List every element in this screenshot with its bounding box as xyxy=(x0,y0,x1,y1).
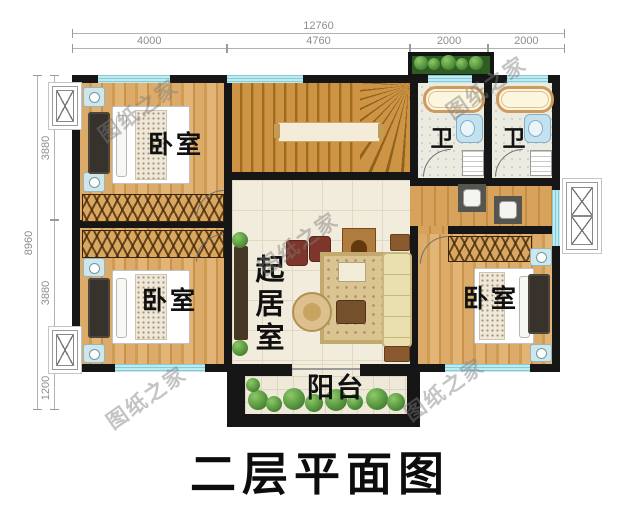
bedroom-top-left-label: 卧室 xyxy=(138,132,214,158)
ac-box xyxy=(52,86,78,126)
side-table xyxy=(390,234,410,251)
bathroom-right-label: 卫 xyxy=(500,126,528,150)
bathroom-left-label: 卫 xyxy=(428,126,456,150)
stair-landing xyxy=(278,122,380,142)
headboard xyxy=(528,274,550,334)
plant xyxy=(456,58,468,70)
balcony-wall-bottom xyxy=(227,414,420,427)
window xyxy=(552,190,560,246)
balcony-label: 阳台 xyxy=(298,374,374,402)
toilet xyxy=(524,114,551,143)
dimension-total-cell: 8960 xyxy=(22,75,38,410)
pillow xyxy=(116,278,127,338)
bathroom-vanity xyxy=(530,150,552,176)
plant xyxy=(414,56,428,70)
dimension-label: 4760 xyxy=(227,35,411,47)
ac-box xyxy=(566,182,598,250)
x-glyph xyxy=(571,216,593,245)
x-glyph xyxy=(571,187,593,216)
dimension-label: 3880 xyxy=(40,135,52,159)
ac-box xyxy=(52,330,78,370)
nightstand xyxy=(83,87,105,107)
dimension-segment: 1200 xyxy=(39,365,55,410)
dimension-segment: 4000 xyxy=(72,33,227,49)
plant xyxy=(469,56,483,70)
dimension-label: 4000 xyxy=(72,35,227,47)
plant xyxy=(246,378,260,392)
round-table xyxy=(292,292,332,332)
plant xyxy=(248,390,268,410)
bedroom-right-door-floor xyxy=(418,226,448,234)
rug-ornament xyxy=(336,300,366,324)
nightstand xyxy=(83,172,105,192)
tv-stand xyxy=(234,246,248,340)
living-balcony-wall-left xyxy=(245,364,292,376)
plant xyxy=(266,396,282,412)
window xyxy=(227,75,303,83)
balcony-sliding-door xyxy=(292,368,360,370)
stair-post xyxy=(274,124,280,138)
plant xyxy=(428,58,440,70)
balcony-wall-left xyxy=(227,368,245,416)
plant xyxy=(441,55,456,70)
dimension-left-total-label: 8960 xyxy=(23,230,35,254)
nightstand xyxy=(83,344,105,363)
washbasin xyxy=(494,196,522,224)
nightstand xyxy=(530,248,552,266)
wardrobe xyxy=(448,236,532,262)
plant xyxy=(232,340,248,356)
bedroom-right-label: 卧室 xyxy=(452,286,530,312)
nightstand xyxy=(530,344,552,362)
dimension-label: 2000 xyxy=(488,35,565,47)
x-glyph xyxy=(56,334,74,366)
washbasin xyxy=(458,184,486,212)
plant xyxy=(232,232,248,248)
sofa xyxy=(382,252,412,348)
dimension-segment: 4760 xyxy=(227,33,411,49)
coffee-table xyxy=(338,262,366,282)
bathroom-vanity xyxy=(462,150,484,176)
page-title: 二层平面图 xyxy=(0,438,640,504)
dimension-total-cell: 12760 xyxy=(72,18,565,34)
dimension-label: 2000 xyxy=(410,35,487,47)
dimension-segment: 2000 xyxy=(410,33,487,49)
dimension-label: 3880 xyxy=(40,280,52,304)
side-table xyxy=(384,346,410,362)
dimension-left-total: 8960 xyxy=(22,75,37,410)
x-glyph xyxy=(56,90,74,122)
floor-plan-canvas: 12760 4000 4760 2000 2000 8960 3880 3880… xyxy=(0,0,640,514)
stair-post xyxy=(378,124,384,138)
nightstand xyxy=(83,258,105,277)
bedroom-bottom-left-label: 卧室 xyxy=(132,288,208,314)
dimension-top-total-label: 12760 xyxy=(72,20,565,32)
dimension-label: 1200 xyxy=(40,375,52,399)
dimension-top-total: 12760 xyxy=(72,18,565,33)
dresser xyxy=(88,278,110,338)
dimension-segment: 2000 xyxy=(488,33,565,49)
dimension-top-segments: 4000 4760 2000 2000 xyxy=(72,33,565,48)
